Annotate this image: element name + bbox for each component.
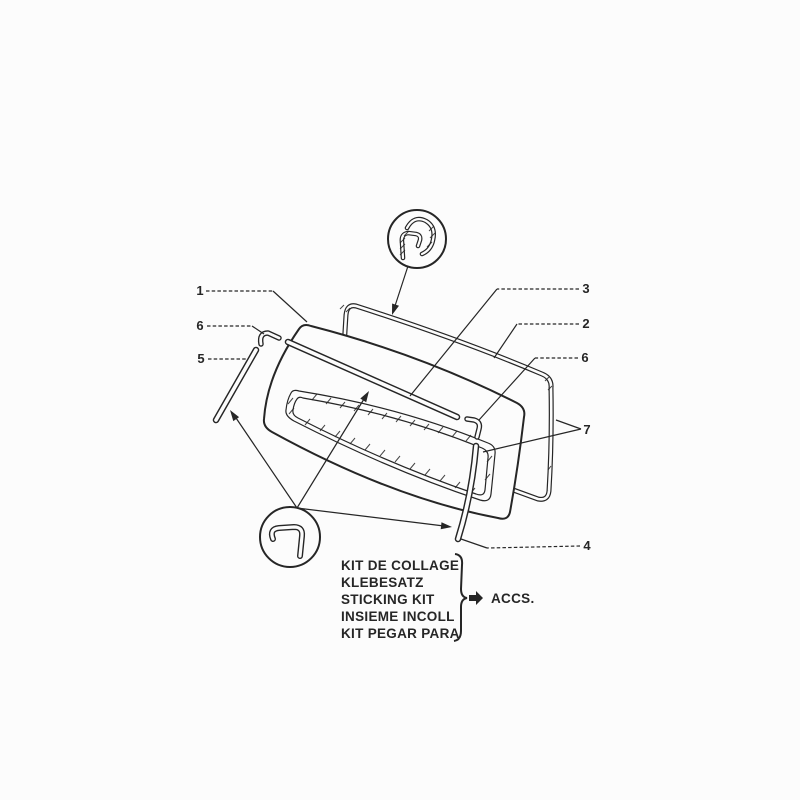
parts-diagram: 1 6 5 3 2 6 7 4 KIT DE COLLAGE KLEBESATZ… (0, 0, 800, 800)
callout-5: 5 (197, 351, 204, 366)
kit-line-fr: KIT DE COLLAGE (341, 558, 459, 573)
callout-6-left: 6 (196, 318, 203, 333)
callout-3: 3 (582, 281, 589, 296)
kit-line-de: KLEBESATZ (341, 575, 424, 590)
kit-line-es: KIT PEGAR PARA (341, 626, 460, 641)
accs-label: ACCS. (491, 591, 535, 606)
molding-profile-detail-view (388, 210, 446, 315)
callout-1: 1 (196, 283, 203, 298)
left-finisher-strip (216, 350, 256, 420)
callout-6-right: 6 (581, 350, 588, 365)
callout-4: 4 (583, 538, 591, 553)
sticking-kit-note: KIT DE COLLAGE KLEBESATZ STICKING KIT IN… (341, 554, 535, 641)
callout-7: 7 (583, 422, 590, 437)
accs-arrow-icon (469, 591, 483, 605)
kit-line-it: INSIEME INCOLL (341, 609, 455, 624)
callout-2: 2 (582, 316, 589, 331)
kit-line-en: STICKING KIT (341, 592, 435, 607)
page: 1 6 5 3 2 6 7 4 KIT DE COLLAGE KLEBESATZ… (0, 0, 800, 800)
left-corner-clip (261, 333, 279, 344)
molding-detail-arrow (392, 266, 408, 315)
